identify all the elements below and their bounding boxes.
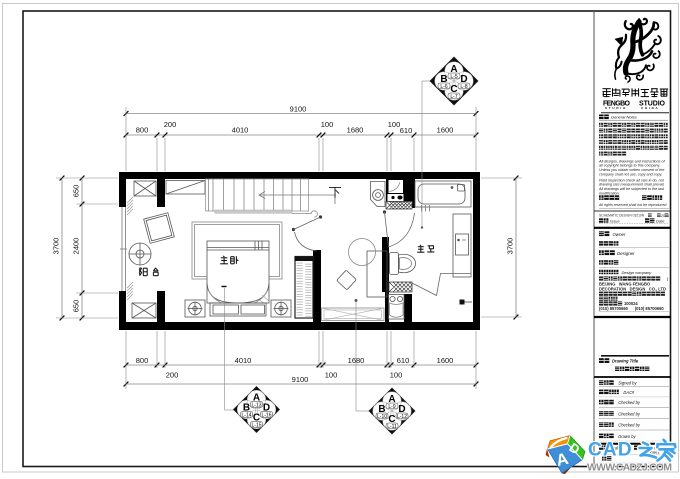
svg-text:100: 100	[388, 120, 401, 129]
svg-text:L-13: L-13	[251, 402, 261, 408]
svg-text:CHINA: CHINA	[641, 106, 660, 110]
svg-text:All rights reserved shall not: All rights reserved shall not be reprodu…	[598, 203, 667, 207]
svg-text:Checked by: Checked by	[618, 423, 641, 428]
svg-text:CAD: CAD	[588, 440, 633, 461]
svg-text:DAC#: DAC#	[623, 390, 635, 395]
svg-text:L-15: L-15	[251, 422, 261, 428]
svg-text:Date: Date	[656, 218, 665, 223]
svg-text:100: 100	[325, 371, 338, 380]
svg-text:Checked by: Checked by	[618, 411, 641, 416]
svg-text:Issue: Issue	[610, 218, 620, 223]
svg-text:All designs, drawings and inst: All designs, drawings and instructions o…	[598, 159, 666, 163]
svg-text:650: 650	[72, 300, 81, 313]
svg-text:Owner: Owner	[613, 232, 626, 237]
svg-text:Unless you obtain written cons: Unless you obtain written consent of the	[599, 168, 664, 172]
svg-text:L-5: L-5	[450, 74, 457, 80]
svg-text:650: 650	[72, 185, 81, 198]
svg-text:200: 200	[166, 371, 179, 380]
svg-text:200: 200	[164, 120, 177, 129]
svg-text:100: 100	[390, 371, 403, 380]
svg-text:800: 800	[136, 356, 149, 365]
svg-text:1680: 1680	[347, 126, 364, 135]
svg-text:L-9: L-9	[388, 404, 395, 410]
svg-text:L-12: L-12	[397, 414, 407, 420]
svg-text:Drawing Title: Drawing Title	[612, 359, 639, 364]
svg-text:company shall not use, copy an: company shall not use, copy and copy.	[599, 172, 663, 176]
svg-text:WWW.CADZJ.COM: WWW.CADZJ.COM	[587, 462, 672, 474]
svg-text:L-8: L-8	[460, 84, 467, 90]
svg-text:SCHEMATIC DESIGN 03210N: SCHEMATIC DESIGN 03210N	[599, 214, 645, 218]
svg-text:DECORATION DESIGN CO., LTD: DECORATION DESIGN CO., LTD	[599, 286, 666, 291]
svg-text:L-14: L-14	[241, 412, 251, 418]
svg-text:STUDIO: STUDIO	[605, 106, 627, 110]
svg-text:Checked by: Checked by	[618, 400, 641, 405]
svg-text:610: 610	[400, 126, 413, 135]
svg-text:L-6: L-6	[440, 84, 447, 90]
svg-text:1600: 1600	[437, 126, 454, 135]
svg-text:Signed by: Signed by	[618, 381, 637, 386]
svg-text:4010: 4010	[232, 126, 249, 135]
svg-text:All drawings will be subjected: All drawings will be subjected to the la…	[598, 187, 665, 191]
svg-text:Designer: Designer	[617, 251, 635, 256]
svg-text:1600: 1600	[437, 356, 454, 365]
svg-text:2400: 2400	[72, 238, 81, 255]
svg-text:Design company: Design company	[622, 270, 653, 275]
svg-text:L-7: L-7	[450, 94, 457, 100]
svg-text:L-10: L-10	[377, 414, 387, 420]
svg-text:General Notes: General Notes	[611, 115, 637, 120]
svg-text:(010) 85700660 (010) 8570: (010) 85700660 (010) 85700660	[599, 306, 664, 311]
svg-text:610: 610	[397, 356, 410, 365]
svg-text:Field inspection check all siz: Field inspection check all size in do, n…	[599, 178, 665, 182]
svg-text:3700: 3700	[52, 238, 61, 255]
svg-text:800: 800	[136, 126, 149, 135]
svg-text:4010: 4010	[235, 356, 252, 365]
svg-text:9100: 9100	[292, 375, 309, 384]
svg-text:modification.: modification.	[599, 191, 620, 195]
svg-text:100: 100	[321, 120, 334, 129]
svg-text:3700: 3700	[506, 238, 515, 255]
svg-text:L-11: L-11	[387, 424, 397, 430]
svg-text:Drawn by: Drawn by	[618, 434, 636, 439]
svg-text:L-16: L-16	[261, 412, 271, 418]
svg-text:9100: 9100	[290, 105, 307, 114]
